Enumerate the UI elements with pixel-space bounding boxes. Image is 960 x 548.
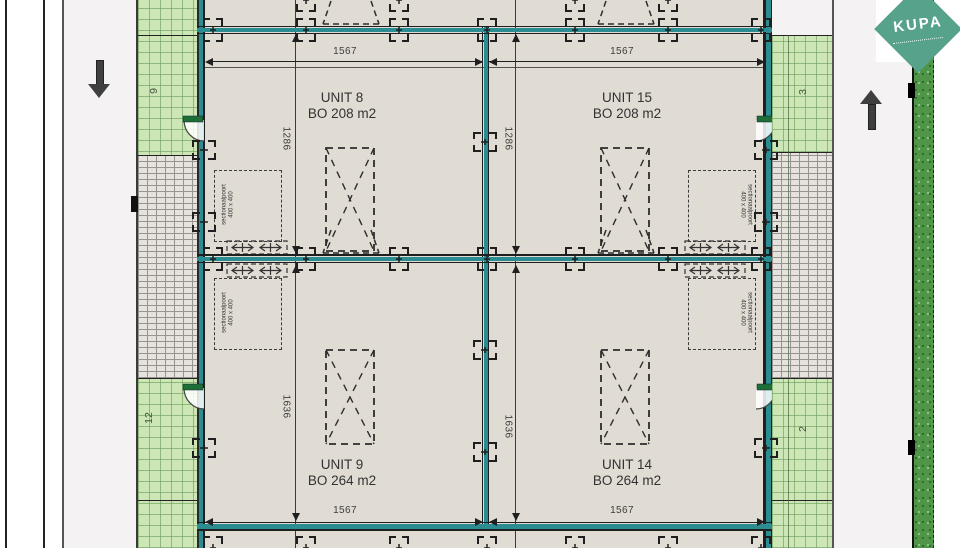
unit-label-unit15: UNIT 15 BO 208 m2	[557, 90, 697, 122]
column-icon	[388, 0, 410, 13]
unit-area: BO 264 m2	[557, 473, 697, 489]
site-plan: 9 12 sectionaalpoort 400 x 400 sectionaa…	[0, 0, 960, 548]
strip-edge-line	[832, 0, 834, 548]
dim-arrow	[205, 58, 213, 66]
column-icon	[202, 17, 224, 43]
unit-area: BO 264 m2	[272, 473, 412, 489]
door-label-line1: sectionaalpoort	[746, 182, 753, 228]
column-icon	[750, 246, 772, 272]
arrow-up-head	[860, 90, 882, 104]
column-icon	[750, 17, 772, 43]
pavement-left	[138, 156, 204, 378]
door-icon	[180, 381, 206, 416]
margin-line	[43, 0, 45, 548]
column-icon	[753, 139, 779, 161]
column-icon	[750, 535, 772, 548]
strip-divider	[138, 378, 204, 379]
dim-line	[489, 61, 765, 62]
column-icon	[564, 535, 586, 548]
door-label-line2: 400 x 400	[739, 182, 746, 228]
door-label-line1: sectionaalpoort	[222, 182, 229, 228]
unit-name: UNIT 15	[557, 90, 697, 106]
unit-label-unit14: UNIT 14 BO 264 m2	[557, 457, 697, 489]
dim-arrow	[512, 513, 520, 521]
dim-arrow	[512, 34, 520, 42]
column-icon	[472, 441, 498, 463]
unit-label-unit9: UNIT 9 BO 264 m2	[272, 457, 412, 489]
column-icon	[657, 535, 679, 548]
door-label-line2: 400 x 400	[229, 290, 236, 336]
roof-hatch	[600, 349, 650, 445]
south-wall	[197, 524, 772, 529]
sectional-door-label: sectionaalpoort 400 x 400	[738, 290, 753, 336]
unit-area: BO 208 m2	[272, 106, 412, 122]
arrow-down-head	[88, 84, 110, 98]
column-icon	[564, 246, 586, 272]
strip-divider	[772, 500, 832, 501]
column-icon	[191, 139, 217, 161]
parcel-label: 9	[148, 78, 162, 104]
door-label-line2: 400 x 400	[739, 290, 746, 336]
column-icon	[388, 535, 410, 548]
grid-line	[515, 0, 516, 548]
dim-line	[207, 61, 483, 62]
hedge-marker	[908, 83, 915, 98]
dim-arrow	[475, 58, 483, 66]
column-icon	[202, 246, 224, 272]
sectional-door-label: sectionaalpoort 400 x 400	[222, 290, 237, 336]
dock-leveler-mark	[226, 263, 288, 283]
parcel-label: 2	[797, 416, 811, 442]
dock-leveler-mark	[684, 263, 746, 283]
dim-width: 1567	[582, 46, 662, 57]
column-icon	[295, 246, 317, 272]
strip-divider	[138, 500, 204, 501]
dim-arrow	[205, 518, 213, 526]
column-icon	[472, 131, 498, 153]
column-icon	[753, 437, 779, 459]
dim-arrow	[512, 246, 520, 254]
column-icon	[295, 0, 317, 13]
unit-name: UNIT 8	[272, 90, 412, 106]
column-icon	[657, 17, 679, 43]
column-icon	[191, 437, 217, 459]
arrow-down-icon	[96, 60, 104, 86]
dim-depth: 1286	[503, 124, 514, 154]
unit-area: BO 208 m2	[557, 106, 697, 122]
strip-divider	[138, 35, 204, 36]
column-icon	[191, 211, 217, 233]
column-icon	[657, 0, 679, 13]
column-icon	[476, 17, 498, 43]
margin-line	[5, 0, 7, 548]
arrow-up-icon	[868, 104, 876, 130]
column-icon	[753, 211, 779, 233]
door-label-line1: sectionaalpoort	[746, 290, 753, 336]
strip-divider	[772, 152, 832, 153]
roof-hatch	[325, 349, 375, 445]
east-wall	[766, 0, 771, 548]
column-icon	[564, 0, 586, 13]
wall-line	[197, 529, 772, 530]
parcel-label: 3	[797, 79, 811, 105]
dim-arrow	[292, 513, 300, 521]
dim-arrow	[757, 58, 765, 66]
sectional-door-label: sectionaalpoort 400 x 400	[222, 182, 237, 228]
column-icon	[657, 246, 679, 272]
unit-label-unit8: UNIT 8 BO 208 m2	[272, 90, 412, 122]
dim-arrow	[512, 265, 520, 273]
pavement-right	[772, 152, 832, 378]
dim-arrow	[489, 58, 497, 66]
dim-width: 1567	[305, 505, 385, 516]
dim-arrow	[489, 518, 497, 526]
dim-depth: 1636	[281, 392, 292, 422]
sectional-door-label: sectionaalpoort 400 x 400	[738, 182, 753, 228]
road-edge-line	[62, 0, 64, 548]
parcel-label: 12	[143, 405, 157, 431]
column-icon	[295, 17, 317, 43]
wall-line	[203, 0, 205, 548]
column-icon	[295, 535, 317, 548]
strip-inner-line	[788, 35, 789, 548]
dim-width: 1567	[582, 505, 662, 516]
column-icon	[202, 535, 224, 548]
door-label-line1: sectionaalpoort	[222, 290, 229, 336]
west-wall	[199, 0, 203, 548]
unit-name: UNIT 14	[557, 457, 697, 473]
dim-depth: 1286	[281, 124, 292, 154]
dim-width: 1567	[305, 46, 385, 57]
column-icon	[472, 339, 498, 361]
dim-arrow	[757, 518, 765, 526]
column-icon	[476, 535, 498, 548]
column-icon	[388, 17, 410, 43]
dim-depth: 1636	[503, 412, 514, 442]
column-icon	[564, 17, 586, 43]
column-icon	[476, 246, 498, 272]
strip-divider	[772, 378, 832, 379]
column-icon	[388, 246, 410, 272]
hedge-marker	[908, 440, 915, 455]
door-label-line2: 400 x 400	[229, 182, 236, 228]
unit-name: UNIT 9	[272, 457, 412, 473]
strip-divider	[772, 35, 832, 36]
dim-arrow	[475, 518, 483, 526]
